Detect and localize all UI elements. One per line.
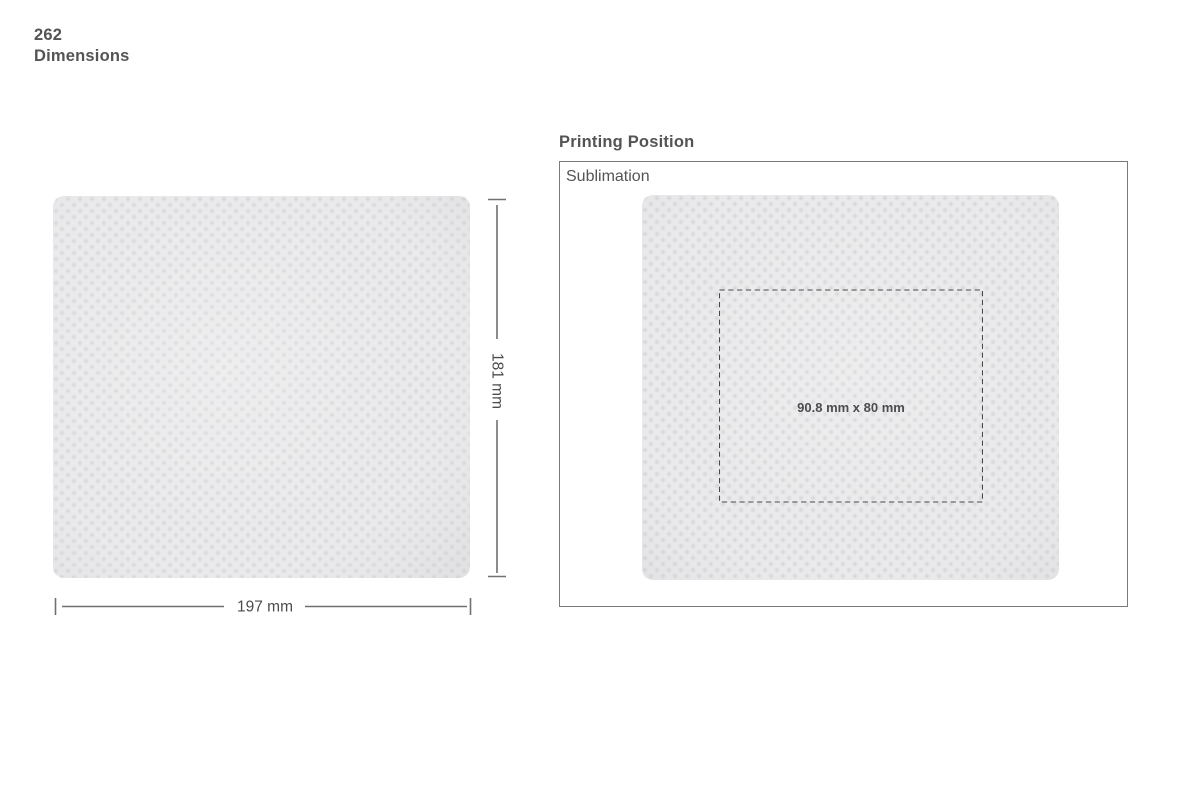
svg-text:181 mm: 181 mm — [488, 353, 505, 409]
svg-text:197 mm: 197 mm — [237, 599, 293, 616]
